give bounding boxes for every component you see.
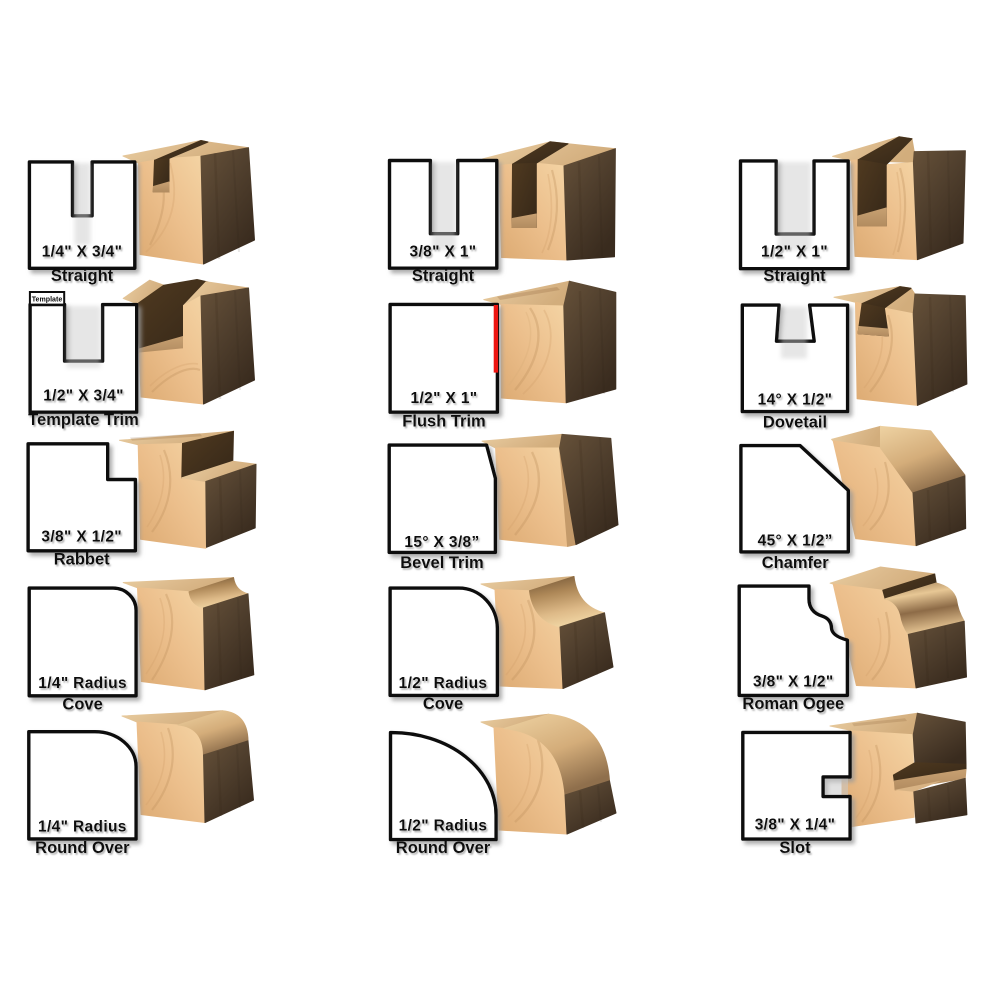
svg-text:Round Over: Round Over: [35, 839, 130, 857]
svg-text:Cove: Cove: [423, 695, 463, 713]
svg-text:Chamfer: Chamfer: [762, 554, 830, 572]
svg-text:Straight: Straight: [51, 267, 114, 285]
svg-text:Bevel Trim: Bevel Trim: [400, 554, 483, 572]
svg-text:1/2" X 3/4": 1/2" X 3/4": [43, 388, 124, 405]
svg-text:1/2" Radius: 1/2" Radius: [399, 818, 488, 835]
svg-text:Flush Trim: Flush Trim: [402, 413, 485, 431]
svg-text:Straight: Straight: [412, 267, 475, 285]
svg-text:Rabbet: Rabbet: [54, 551, 110, 569]
svg-text:1/2" Radius: 1/2" Radius: [399, 675, 488, 692]
svg-text:Cove: Cove: [62, 696, 102, 714]
svg-text:1/4" Radius: 1/4" Radius: [38, 675, 127, 692]
svg-text:14° X 1/2": 14° X 1/2": [758, 392, 833, 409]
svg-text:1/2" X 1": 1/2" X 1": [761, 244, 828, 261]
svg-text:Template: Template: [32, 294, 63, 303]
svg-text:Dovetail: Dovetail: [763, 414, 827, 432]
svg-text:Slot: Slot: [779, 839, 811, 857]
svg-text:Round Over: Round Over: [396, 839, 491, 857]
svg-text:Roman Ogee: Roman Ogee: [742, 695, 844, 713]
svg-text:1/4" X 3/4": 1/4" X 3/4": [42, 244, 123, 261]
svg-text:3/8" X 1": 3/8" X 1": [410, 244, 477, 261]
svg-text:45° X 1/2”: 45° X 1/2”: [758, 533, 833, 550]
svg-text:1/2" X 1": 1/2" X 1": [411, 390, 478, 407]
svg-text:3/8" X 1/2": 3/8" X 1/2": [753, 674, 834, 691]
svg-text:15° X 3/8”: 15° X 3/8”: [404, 534, 479, 551]
svg-text:1/4" Radius: 1/4" Radius: [38, 819, 127, 836]
svg-text:3/8" X 1/2": 3/8" X 1/2": [41, 529, 122, 546]
svg-text:Straight: Straight: [763, 267, 826, 285]
svg-text:Template Trim: Template Trim: [28, 411, 139, 429]
svg-text:3/8" X 1/4": 3/8" X 1/4": [755, 817, 836, 834]
